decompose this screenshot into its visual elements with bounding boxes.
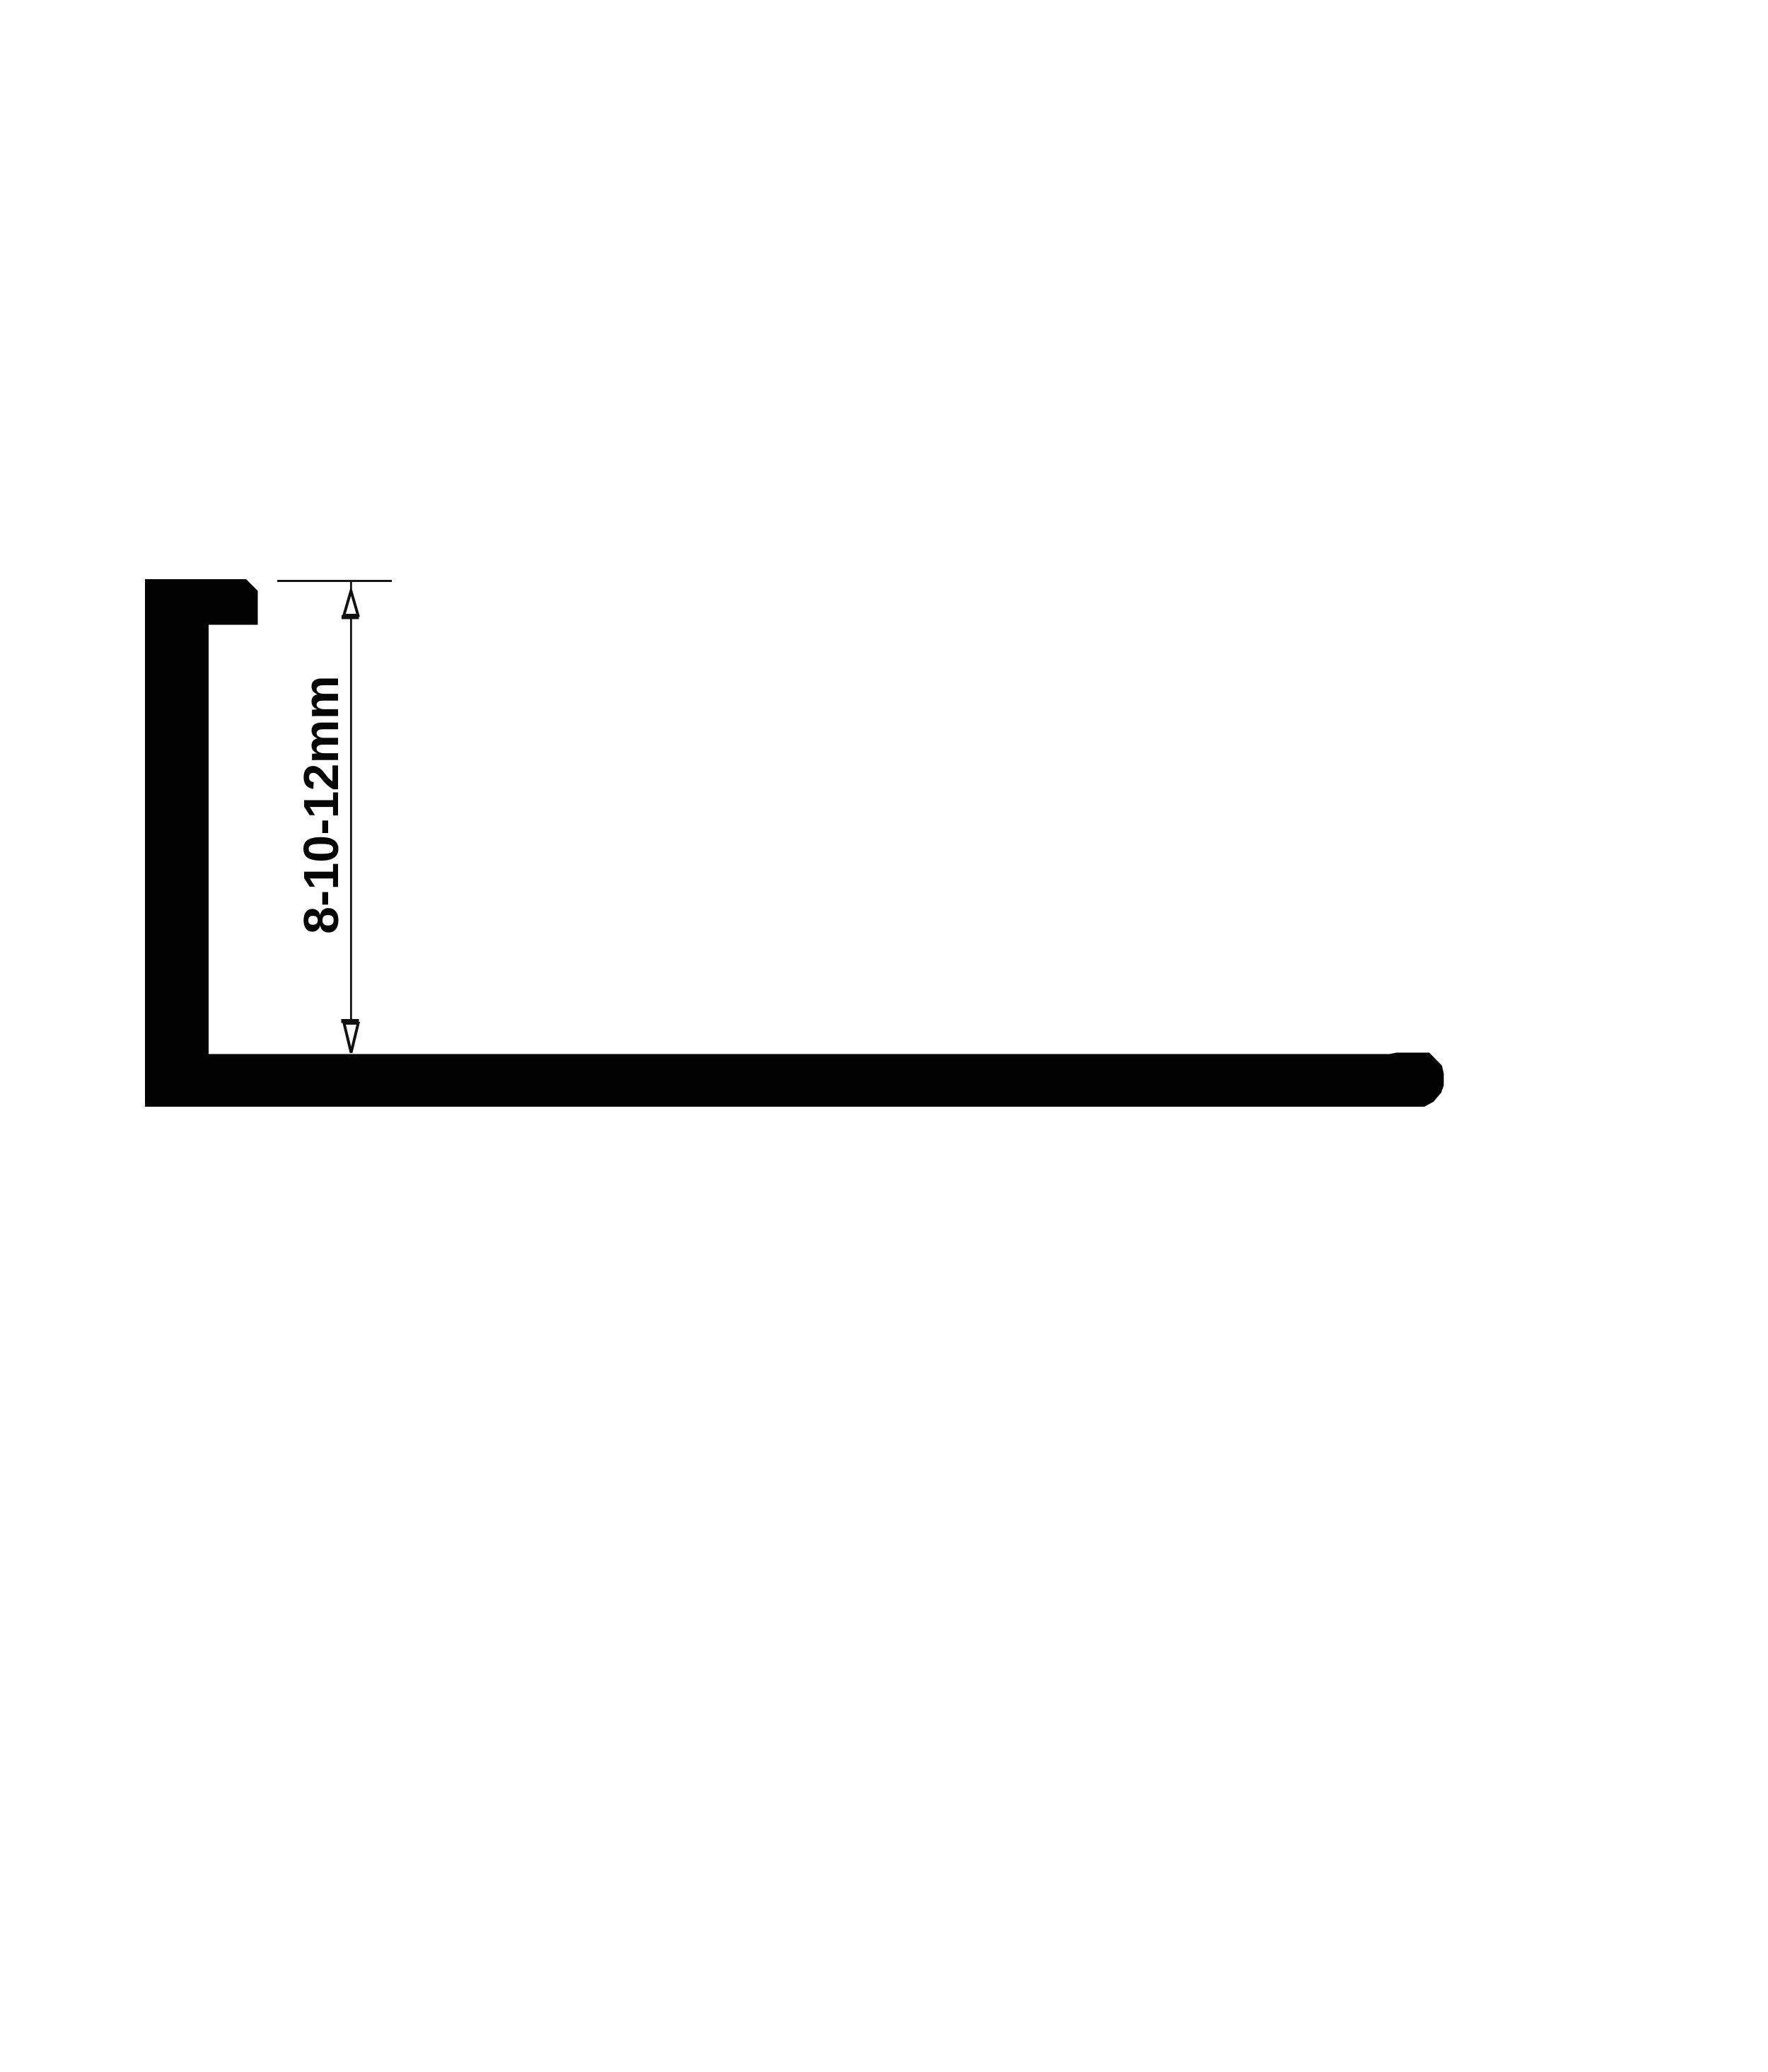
svg-text:8-10-12mm: 8-10-12mm — [293, 675, 349, 934]
